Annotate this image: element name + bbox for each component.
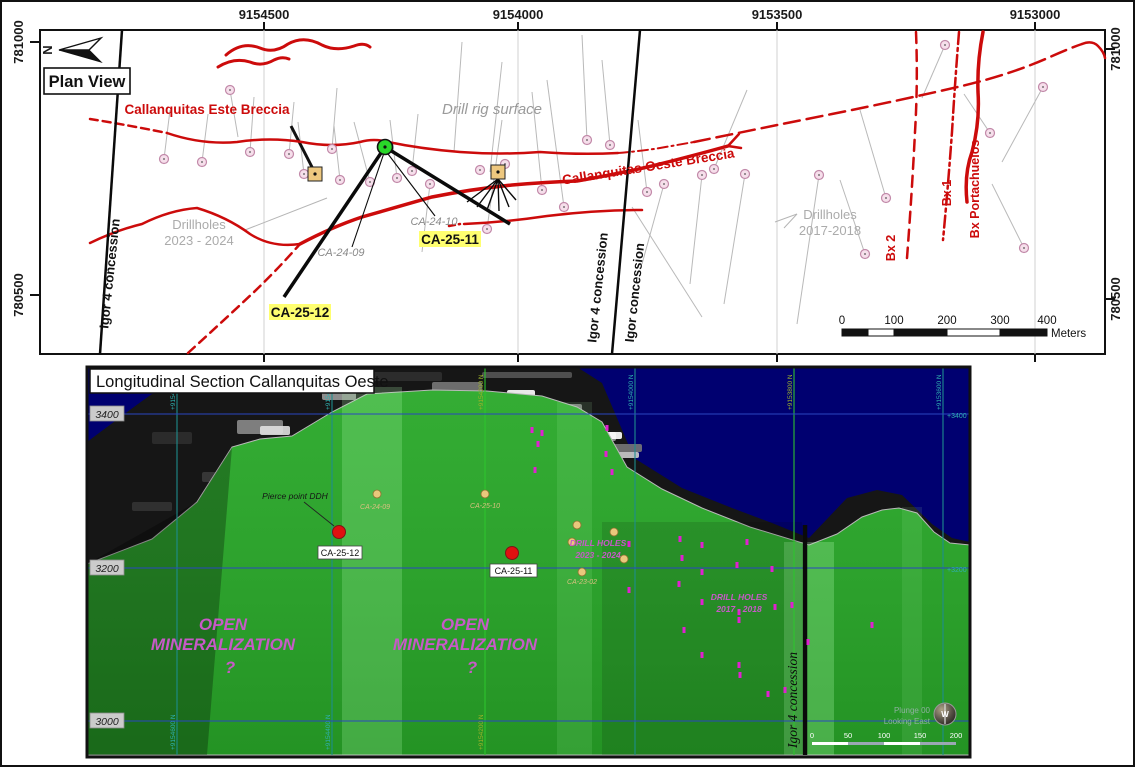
- drill-collar-dot: [609, 144, 611, 146]
- pad-fan-line: [498, 179, 499, 211]
- pierce-marker-2017: [701, 569, 704, 575]
- drill-collar-dot: [429, 183, 431, 185]
- drill-pad-dot: [496, 170, 499, 173]
- drill-collar-dot: [744, 173, 746, 175]
- looking-east-label: Looking East: [884, 717, 931, 726]
- scalebar-segment: [894, 329, 947, 336]
- plan-title: Plan View: [49, 73, 126, 91]
- section-hole-label: CA-24-09: [360, 504, 390, 511]
- drillholes-2023-label: Drillholes: [172, 217, 226, 232]
- rock-patch: [152, 432, 192, 444]
- pierce-marker-2017: [611, 469, 614, 475]
- pierce-marker-2017: [791, 602, 794, 608]
- drill-collar-dot: [713, 168, 715, 170]
- pierce-marker-2017: [736, 562, 739, 568]
- bx1-label: Bx 1: [940, 180, 954, 206]
- map-scene: 9154500915400091535009153000781000780500…: [2, 2, 1135, 767]
- drillholes-2017-label: Drillholes: [803, 207, 857, 222]
- ca-25-12-label: CA-25-12: [271, 305, 330, 320]
- este-breccia-label: Callanquitas Este Breccia: [124, 102, 290, 117]
- bx-portachuelos-label: Bx Portachuelos: [968, 140, 982, 239]
- open-mineralization-right2: MINERALIZATION: [393, 635, 538, 654]
- drill-collar-dot: [701, 174, 703, 176]
- drill-collar-dot: [479, 169, 481, 171]
- pierce-marker-2017: [701, 599, 704, 605]
- section-scalebar-label: 0: [810, 731, 814, 740]
- rock-patch: [132, 502, 172, 511]
- scalebar-tick-label: 200: [937, 315, 956, 327]
- pierce-marker-2017: [738, 662, 741, 668]
- elevation-label: 3200: [95, 563, 119, 575]
- drill-pad-dot: [313, 172, 316, 175]
- sec-drillholes-2023-label2: 2023 - 2024: [574, 550, 621, 560]
- scalebar-segment: [1000, 329, 1047, 336]
- rock-patch: [482, 372, 572, 378]
- plunge-label: Plunge 00: [894, 706, 931, 715]
- northing-grid-label: +9154400 N: [325, 714, 332, 750]
- northing-grid-label: +9153800 N: [787, 374, 794, 410]
- drill-collar-dot: [944, 44, 946, 46]
- drill-collar-dot: [646, 191, 648, 193]
- pierce-marker-2017: [531, 427, 534, 433]
- elevation-label: 3400: [95, 409, 119, 421]
- northing-grid-label: +9154200 N: [478, 714, 485, 750]
- drill-collar-dot: [288, 153, 290, 155]
- easting-label: 9153000: [1010, 7, 1061, 22]
- drill-collar-dot: [396, 177, 398, 179]
- north-label: N: [40, 45, 55, 54]
- rock-patch: [260, 426, 290, 435]
- pierce-marker-2017: [774, 604, 777, 610]
- pierce-marker-2017: [605, 451, 608, 457]
- drill-collar-dot: [989, 132, 991, 134]
- northing-label: 781000: [11, 20, 26, 63]
- pierce-marker-2017: [679, 536, 682, 542]
- northing-label: 781000: [1108, 27, 1123, 70]
- pierce-marker-2017: [871, 622, 874, 628]
- drill-collar-dot: [369, 181, 371, 183]
- drill-collar-dot: [303, 173, 305, 175]
- section-scalebar-segment: [848, 742, 884, 745]
- pierce-marker-2017: [683, 627, 686, 633]
- pierce-marker-2017: [701, 542, 704, 548]
- section-scalebar-segment: [920, 742, 956, 745]
- northing-label: 780500: [1108, 277, 1123, 320]
- section-scalebar-label: 50: [844, 731, 852, 740]
- section-hole-label: CA-25-10: [470, 503, 500, 510]
- section-title: Longitudinal Section Callanquitas Oeste: [96, 373, 389, 391]
- pierce-marker-2017: [541, 430, 544, 436]
- pierce-marker-2017: [628, 587, 631, 593]
- planned-pierce-point: [333, 526, 346, 539]
- pierce-dot-2023: [481, 490, 489, 498]
- section-scalebar-segment: [884, 742, 920, 745]
- section-scalebar-segment: [812, 742, 848, 745]
- drill-collar-dot: [563, 206, 565, 208]
- open-mineralization-left2: MINERALIZATION: [151, 635, 296, 654]
- drill-collar-dot: [541, 189, 543, 191]
- easting-label: 9153500: [752, 7, 803, 22]
- sec-drillholes-2017-label: DRILL HOLES: [711, 592, 768, 602]
- scalebar-tick-label: 100: [884, 315, 903, 327]
- elevation-right-label: +3200: [947, 567, 967, 574]
- terrain-shadow-mid: [602, 522, 802, 755]
- northing-grid-label: +9154600 N: [170, 714, 177, 750]
- drill-collar-dot: [163, 158, 165, 160]
- open-mineralization-right: OPEN: [441, 615, 490, 634]
- northing-label: 780500: [11, 273, 26, 316]
- ca-24-09-label: CA-24-09: [317, 247, 364, 259]
- drill-collar-dot: [339, 179, 341, 181]
- drill-rig-dot: [383, 145, 386, 148]
- drill-collar-dot: [586, 139, 588, 141]
- pierce-label: CA-25-12: [321, 548, 360, 558]
- pierce-point-label: Pierce point DDH: [262, 491, 329, 501]
- northing-grid-label: +9154000 N: [628, 374, 635, 410]
- bx2-label: Bx 2: [884, 235, 898, 261]
- drill-collar-dot: [486, 228, 488, 230]
- easting-label: 9154000: [493, 7, 544, 22]
- scalebar-segment: [947, 329, 1000, 336]
- pierce-dot-2023: [620, 555, 628, 563]
- pierce-marker-2017: [767, 691, 770, 697]
- pierce-dot-2023: [610, 528, 618, 536]
- pierce-dot-2023: [373, 490, 381, 498]
- section-scalebar-label: 150: [914, 731, 927, 740]
- compass-west-label: W: [941, 710, 949, 719]
- drill-collar-dot: [249, 151, 251, 153]
- drill-collar-dot: [663, 183, 665, 185]
- open-mineralization-right3: ?: [467, 658, 478, 677]
- pierce-marker-2017: [606, 425, 609, 431]
- drillholes-2023-label2: 2023 - 2024: [164, 233, 233, 248]
- sec-drillholes-2023-label: DRILL HOLES: [570, 538, 627, 548]
- pierce-label: CA-25-11: [495, 566, 533, 576]
- drill-rig-surface-label: Drill rig surface: [442, 101, 542, 118]
- scalebar-unit: Meters: [1051, 328, 1086, 340]
- easting-label: 9154500: [239, 7, 290, 22]
- pierce-dot-2023: [578, 568, 586, 576]
- terrain-light-band: [342, 387, 402, 755]
- pierce-marker-2017: [537, 441, 540, 447]
- pierce-dot-2023: [573, 521, 581, 529]
- pierce-marker-2017: [739, 672, 742, 678]
- pierce-marker-2017: [701, 652, 704, 658]
- drill-collar-dot: [864, 253, 866, 255]
- ca-25-11-label: CA-25-11: [421, 232, 479, 247]
- northing-grid-label: +9154200 N: [478, 374, 485, 410]
- section-scalebar-label: 100: [878, 731, 891, 740]
- drill-collar-dot: [818, 174, 820, 176]
- drill-collar-dot: [411, 170, 413, 172]
- drill-collar-dot: [1023, 247, 1025, 249]
- scalebar-tick-label: 300: [990, 315, 1009, 327]
- open-mineralization-left3: ?: [225, 658, 236, 677]
- scalebar-tick-label: 400: [1037, 315, 1056, 327]
- pierce-marker-2017: [771, 566, 774, 572]
- elevation-label: 3000: [95, 716, 119, 728]
- drill-collar-dot: [201, 161, 203, 163]
- elevation-right-label: +3400: [947, 413, 967, 420]
- section-scalebar-label: 200: [950, 731, 963, 740]
- pierce-marker-2017: [807, 639, 810, 645]
- scalebar-segment: [842, 329, 868, 336]
- planned-pierce-point: [506, 547, 519, 560]
- sec-drillholes-2017-label2: 2017 - 2018: [715, 604, 762, 614]
- open-mineralization-left: OPEN: [199, 615, 248, 634]
- drill-collar-dot: [229, 89, 231, 91]
- pierce-marker-2017: [746, 539, 749, 545]
- drill-collar-dot: [885, 197, 887, 199]
- pierce-marker-2017: [628, 541, 631, 547]
- pierce-marker-2017: [681, 555, 684, 561]
- section-hole-label: CA-23-02: [567, 579, 597, 586]
- northing-grid-label: +9153600 N: [936, 374, 943, 410]
- drill-collar-dot: [1042, 86, 1044, 88]
- pierce-marker-2017: [678, 581, 681, 587]
- igor4-concession-section-label: Igor 4 concession: [785, 652, 800, 749]
- section-body: +9154600 N+9154600 N+9154400 N+9154400 N…: [87, 367, 970, 757]
- ca-24-10-label: CA-24-10: [410, 216, 458, 228]
- scalebar-tick-label: 0: [839, 315, 845, 327]
- drill-collar-dot: [331, 148, 333, 150]
- figure-canvas: 9154500915400091535009153000781000780500…: [0, 0, 1135, 767]
- pierce-marker-2017: [738, 617, 741, 623]
- drillholes-2017-label2: 2017-2018: [799, 223, 861, 238]
- scalebar-segment: [868, 329, 894, 336]
- pierce-marker-2017: [534, 467, 537, 473]
